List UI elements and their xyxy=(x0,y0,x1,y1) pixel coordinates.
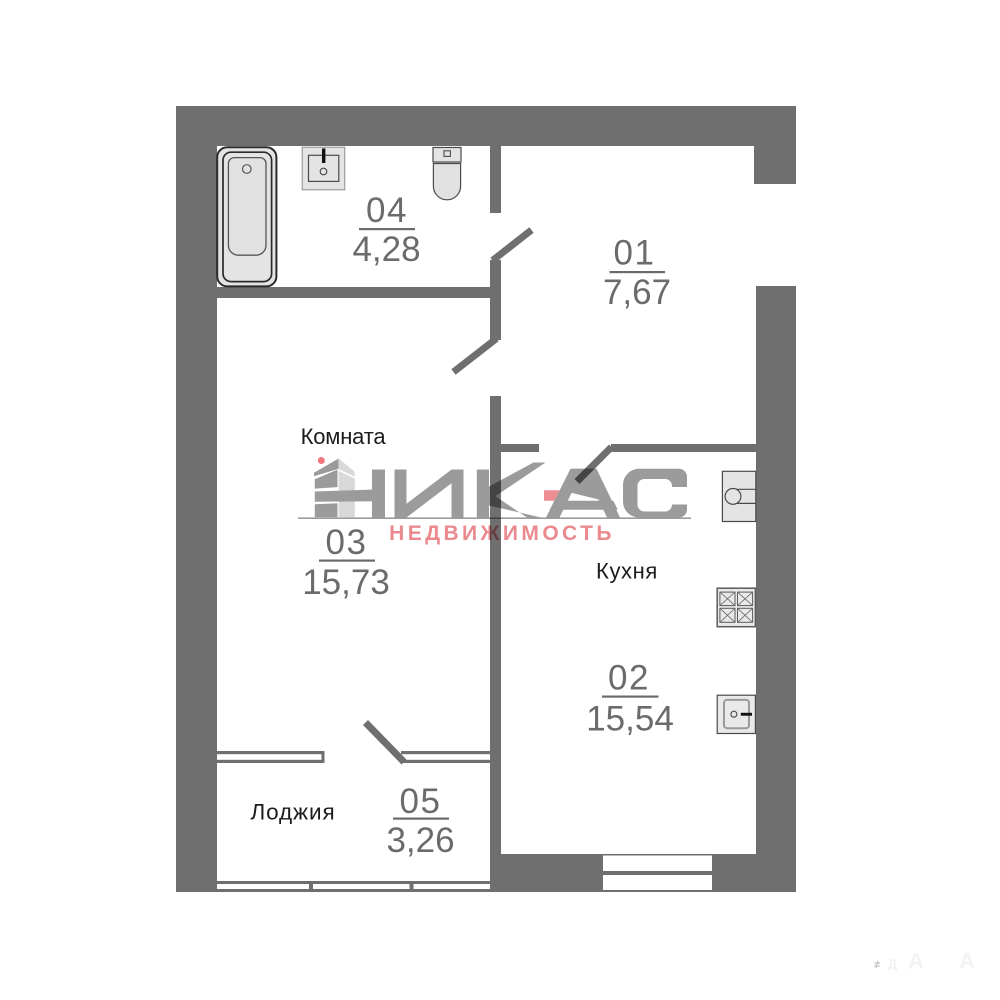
svg-text:04: 04 xyxy=(366,191,408,230)
svg-text:Кухня: Кухня xyxy=(596,558,658,583)
svg-text:Комната: Комната xyxy=(301,424,387,449)
svg-text:02: 02 xyxy=(608,659,650,698)
svg-text:Лоджия: Лоджия xyxy=(250,800,335,825)
svg-text:01: 01 xyxy=(614,234,656,273)
svg-text:7,67: 7,67 xyxy=(603,273,671,312)
svg-text:Д: Д xyxy=(888,957,897,972)
svg-text:НЕДВИЖИМОСТЬ: НЕДВИЖИМОСТЬ xyxy=(389,522,615,545)
svg-text:4,28: 4,28 xyxy=(352,230,420,269)
svg-text:A: A xyxy=(959,949,975,974)
svg-text:15,73: 15,73 xyxy=(302,563,390,602)
svg-text:3,26: 3,26 xyxy=(386,821,454,860)
svg-text:15,54: 15,54 xyxy=(586,700,674,739)
svg-text:05: 05 xyxy=(400,782,442,821)
svg-text:03: 03 xyxy=(326,523,368,562)
svg-text:A: A xyxy=(908,949,924,974)
